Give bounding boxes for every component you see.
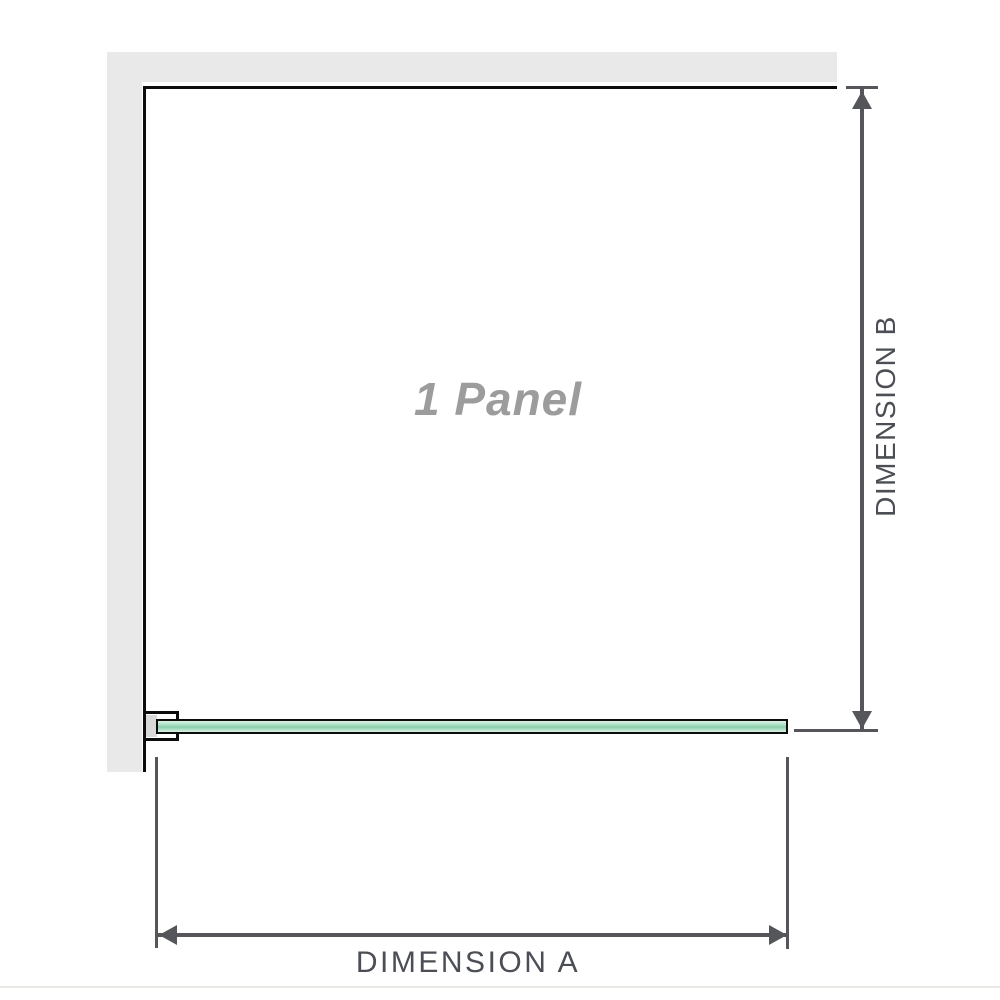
arrow-left-icon: [159, 925, 177, 945]
panel-dimension-diagram: 1 Panel DIMENSION B DIMENSION A: [0, 0, 1000, 1000]
dimension-b-tick-bottom: [794, 729, 878, 732]
dimension-a-line: [158, 933, 787, 937]
panel-count-label: 1 Panel: [348, 372, 648, 426]
enclosure-edge-top: [143, 86, 837, 89]
arrow-right-icon: [769, 925, 787, 945]
dimension-a-extension-left: [155, 757, 158, 948]
wall-top: [107, 52, 837, 82]
dimension-a-label: DIMENSION A: [298, 946, 638, 980]
glass-panel: [156, 719, 788, 734]
enclosure-edge-left: [143, 86, 146, 772]
arrow-up-icon: [852, 91, 872, 109]
background-edge-line: [0, 986, 1000, 988]
dimension-b-line: [860, 89, 864, 730]
dimension-a-extension-right: [786, 757, 789, 949]
wall-left: [107, 52, 142, 772]
dimension-b-label: DIMENSION B: [869, 256, 903, 576]
arrow-down-icon: [852, 711, 872, 729]
